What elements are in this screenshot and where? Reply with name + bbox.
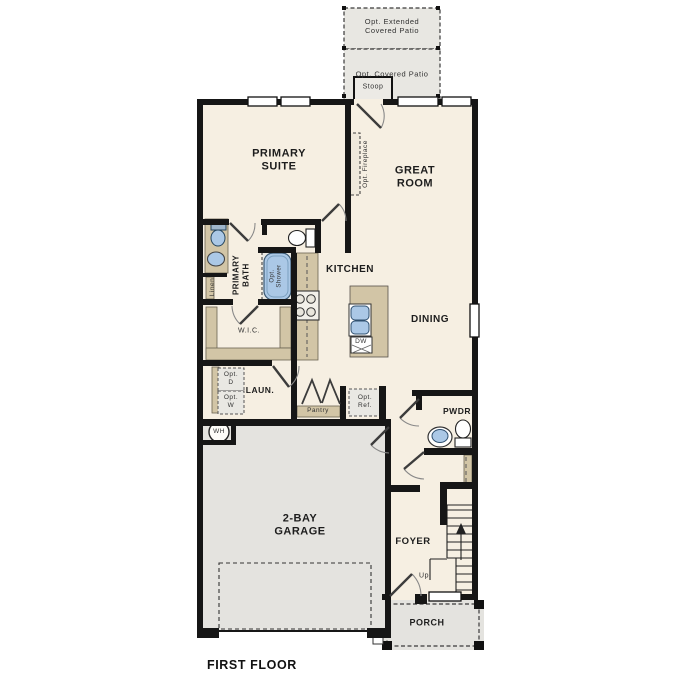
window (281, 97, 310, 106)
stairs-up-label: Up (419, 573, 429, 582)
page-title: FIRST FLOOR (207, 658, 297, 672)
dishwasher-label: DW (355, 338, 367, 346)
room-label-pwdr: PWDR (443, 406, 471, 416)
room-label-garage: 2-BAY GARAGE (274, 513, 325, 540)
opt-fireplace-label: Opt. Fireplace (362, 140, 370, 188)
room-label-primary-bath: PRIMARY BATH (231, 255, 251, 295)
opt-shower-label: Opt. Shower (270, 264, 285, 287)
porch-post (474, 600, 484, 609)
closet-shelf (464, 455, 472, 483)
room-label-dining: DINING (411, 314, 449, 326)
opt-extended-patio-label: Opt. Extended Covered Patio (365, 17, 419, 35)
opt-fridge-label: Opt. Ref. (358, 394, 372, 410)
opt-dryer-label: Opt. D (224, 371, 238, 387)
window (442, 97, 471, 106)
window (470, 304, 479, 337)
water-heater-label: WH (213, 428, 225, 436)
toilet-icon (289, 229, 316, 247)
wic-shelf (206, 348, 291, 360)
floor-plan-drawing (0, 0, 687, 687)
sink-icon (208, 252, 225, 266)
porch-post (474, 641, 484, 650)
room-label-primary-suite: PRIMARY SUITE (252, 148, 306, 175)
room-label-stoop: Stoop (363, 84, 384, 93)
room-label-pantry: Pantry (307, 407, 329, 415)
window (429, 592, 461, 601)
toilet-icon (211, 224, 226, 246)
room-label-linen: Linen (209, 278, 217, 296)
room-label-porch: PORCH (409, 618, 444, 629)
floor-plan-page: PRIMARY SUITE GREAT ROOM KITCHEN DINING … (0, 0, 687, 687)
opt-washer-label: Opt. W (224, 394, 238, 410)
room-label-kitchen: KITCHEN (326, 264, 374, 276)
window (248, 97, 277, 106)
wic-shelf (280, 307, 291, 348)
opt-covered-patio-label: Opt. Covered Patio (356, 69, 429, 78)
toilet-icon (455, 420, 471, 447)
room-label-wic: W.I.C. (238, 328, 260, 337)
window (398, 97, 438, 106)
island-sink-icon (349, 304, 371, 336)
room-label-laundry: LAUN. (246, 385, 274, 395)
room-label-foyer: FOYER (395, 536, 430, 548)
room-label-great-room: GREAT ROOM (395, 165, 435, 192)
pwdr-sink-icon (428, 427, 452, 447)
